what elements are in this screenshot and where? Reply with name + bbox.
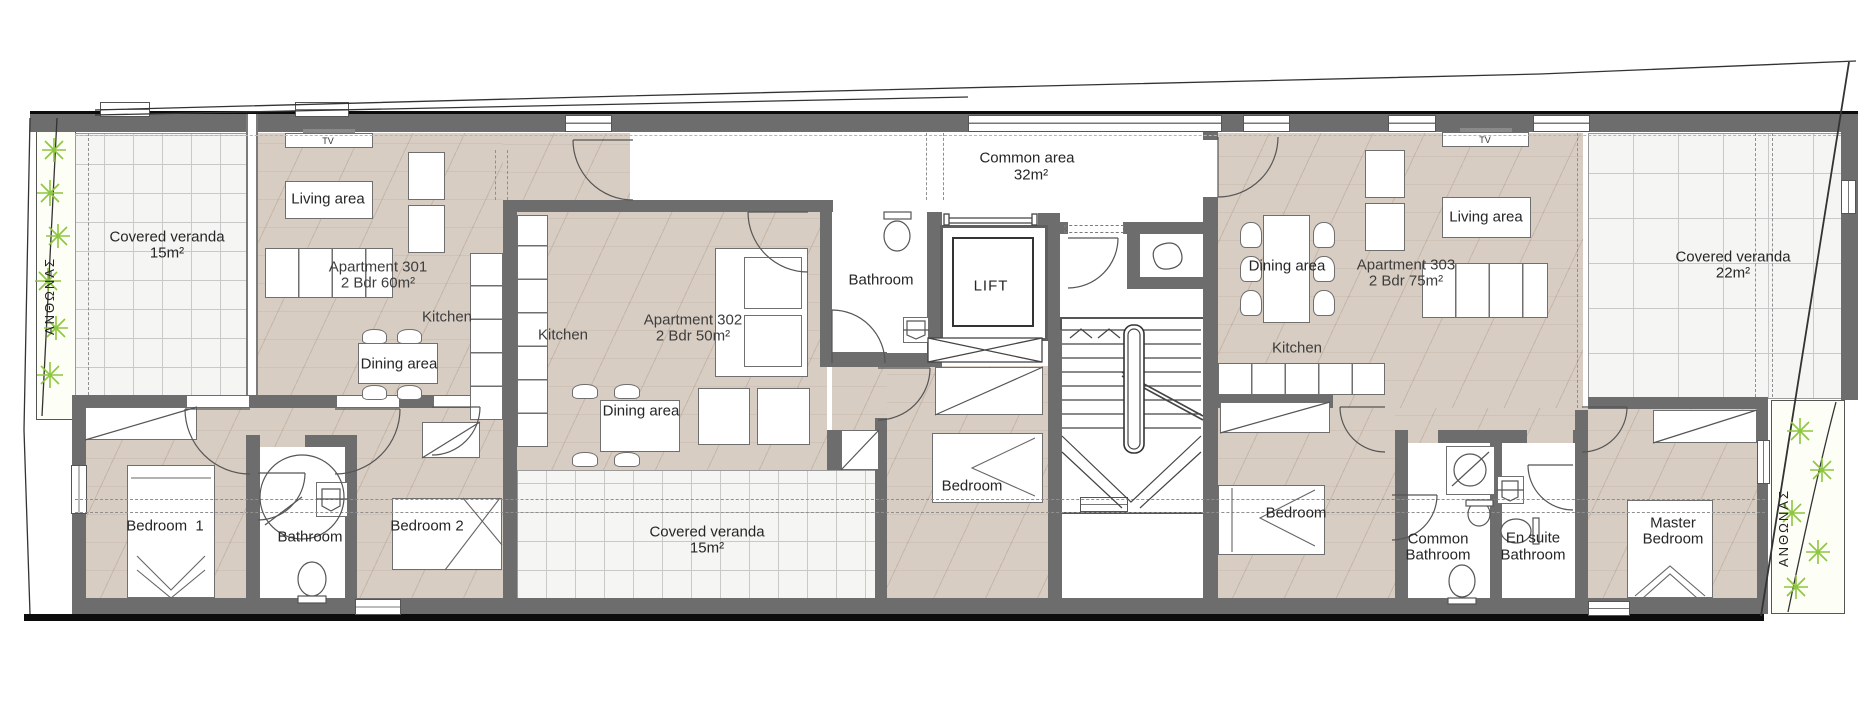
dashed-line — [943, 133, 944, 200]
sliding-door — [1064, 225, 1124, 233]
label-dining-301: Dining area — [361, 357, 438, 374]
wall — [1588, 397, 1768, 409]
label-tv-303: TV — [1479, 135, 1491, 145]
label-veranda-bottom-area: 15m² — [690, 541, 724, 558]
dashed-line — [75, 499, 1765, 500]
label-master-2: Bedroom — [1643, 532, 1704, 549]
window-band-common — [968, 115, 1222, 132]
wall — [1575, 410, 1588, 598]
label-bathroom-302: Bathroom — [848, 273, 913, 290]
wall — [503, 200, 833, 212]
wall — [820, 212, 832, 367]
door-opening — [187, 396, 249, 407]
veranda-left — [75, 133, 248, 397]
wall — [246, 435, 260, 598]
label-bathroom-301: Bathroom — [277, 530, 342, 547]
armchair — [1365, 203, 1405, 251]
label-living-301: Living area — [291, 192, 364, 209]
wardrobe-door — [744, 315, 802, 367]
armchair — [408, 205, 445, 253]
wardrobe-door — [744, 257, 802, 309]
label-dining-302: Dining area — [603, 404, 680, 421]
dashed-line — [495, 150, 496, 200]
wall — [1438, 430, 1527, 443]
label-ensuite-2: Bathroom — [1500, 548, 1565, 565]
closet — [1653, 410, 1757, 443]
chair — [362, 329, 387, 344]
bathroom301-room — [260, 447, 345, 598]
tv-screen — [1460, 128, 1512, 132]
chair — [572, 452, 598, 467]
closet — [85, 407, 197, 440]
label-veranda-right-area: 22m² — [1716, 266, 1750, 283]
veranda-glazing — [246, 114, 258, 395]
label-dining-303: Dining area — [1249, 259, 1326, 276]
chair — [1240, 290, 1262, 316]
window — [565, 115, 612, 132]
chair — [397, 385, 422, 400]
label-veranda-left-area: 15m² — [150, 246, 184, 263]
label-bedroom-302: Bedroom — [942, 479, 1003, 496]
window — [1388, 115, 1436, 132]
floor-plan: Covered veranda 15m² Living area TV Apar… — [0, 0, 1873, 726]
chair — [1313, 290, 1335, 316]
label-kitchen-303: Kitchen — [1272, 341, 1322, 358]
wall — [1395, 430, 1408, 443]
chair — [362, 385, 387, 400]
wall — [1127, 230, 1140, 289]
wall — [1395, 433, 1408, 598]
dashed-line — [507, 150, 508, 200]
wc-room — [1140, 234, 1203, 277]
label-common-area-size: 32m² — [1014, 168, 1048, 185]
kitchen-counter — [470, 253, 503, 420]
chair — [1313, 222, 1335, 248]
shower — [1446, 446, 1495, 495]
wall — [1048, 330, 1062, 612]
label-garden-left: ΑΝΘΩΝΑΣ — [42, 195, 57, 335]
dashed-line — [926, 133, 927, 200]
label-garden-right: ΑΝΘΩΝΑΣ — [1776, 452, 1791, 567]
tv-screen — [303, 129, 355, 133]
wall — [1203, 132, 1218, 140]
window — [1243, 115, 1290, 132]
window — [355, 599, 401, 615]
wall — [1757, 397, 1768, 598]
label-bedroom1-301: Bedroom 1 — [126, 519, 204, 536]
label-common-area-name: Common area — [979, 151, 1074, 168]
entry-vestibule-floor — [503, 133, 630, 200]
label-bedroom2-301: Bedroom 2 — [390, 519, 463, 536]
wall — [24, 614, 1764, 621]
wall-right — [1841, 114, 1858, 400]
label-kitchen-302: Kitchen — [538, 328, 588, 345]
window — [100, 102, 150, 117]
ensuite-bathroom-room — [1502, 443, 1575, 598]
label-ensuite-1: En suite — [1506, 531, 1560, 548]
window — [1841, 180, 1856, 214]
wall — [305, 435, 357, 447]
label-apt303-size: 2 Bdr 75m² — [1369, 274, 1443, 291]
armchair — [408, 152, 445, 200]
label-apt301-size: 2 Bdr 60m² — [341, 276, 415, 293]
stair-landing-room — [1062, 510, 1203, 598]
chair — [614, 384, 640, 399]
sofa — [698, 388, 750, 445]
chair — [614, 452, 640, 467]
label-common-bath-2: Bathroom — [1405, 548, 1470, 565]
closet — [1220, 402, 1330, 433]
washbasin-unit — [903, 317, 929, 343]
chair — [1240, 222, 1262, 248]
dashed-line — [75, 512, 1765, 513]
window — [1533, 115, 1590, 132]
wall — [503, 200, 517, 598]
label-lift: LIFT — [974, 279, 1009, 296]
closet — [422, 422, 480, 458]
wall-bottom — [72, 598, 1768, 614]
label-kitchen-301: Kitchen — [422, 310, 472, 327]
closet — [935, 367, 1043, 415]
window — [71, 465, 87, 514]
sofa — [757, 388, 810, 445]
armchair — [1365, 150, 1405, 198]
label-apt302-size: 2 Bdr 50m² — [656, 329, 730, 346]
label-living-303: Living area — [1449, 210, 1522, 227]
pillar — [841, 430, 879, 470]
window — [1757, 440, 1770, 484]
chair — [572, 384, 598, 399]
label-bedroom-303: Bedroom — [1266, 506, 1327, 523]
window — [1588, 601, 1630, 616]
dashed-line — [1577, 133, 1578, 408]
window — [295, 102, 349, 117]
kitchen-counter — [1218, 363, 1385, 395]
label-tv-301: TV — [322, 136, 334, 146]
chair — [397, 329, 422, 344]
staircase — [1060, 317, 1207, 514]
wall — [827, 352, 887, 366]
dashed-line — [88, 133, 89, 395]
